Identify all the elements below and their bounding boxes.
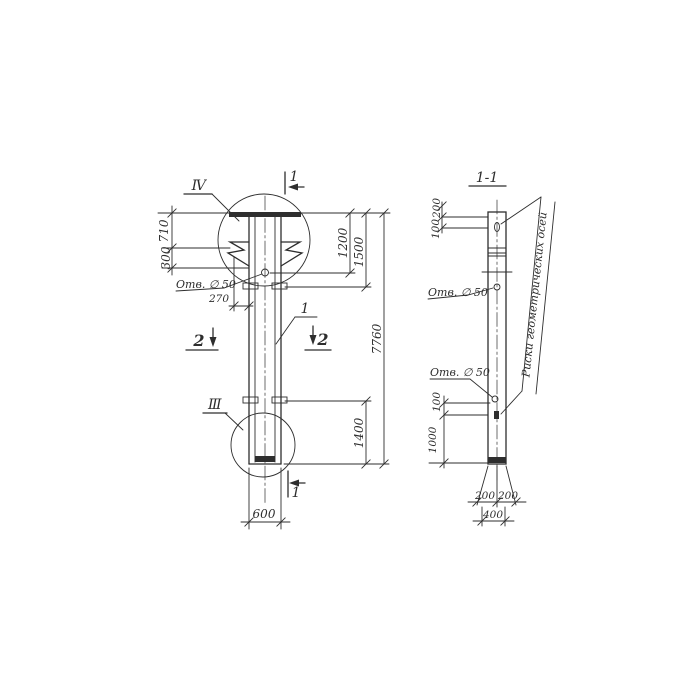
dim-1500: 1500 <box>352 236 366 267</box>
axis-mark-rect <box>494 411 499 419</box>
collar-chevron-left <box>228 242 249 266</box>
note-leader-bottom <box>501 391 522 414</box>
section-mark-1-top: 1 <box>290 169 299 185</box>
hole-diameter-label-lower: Отв. ∅ 50 <box>430 366 490 379</box>
dim-1000: 1000 <box>427 426 439 453</box>
detail-iv-leader <box>212 194 239 221</box>
part-callout-1: 1 <box>301 301 310 317</box>
rail-mark-lower-right <box>272 397 287 403</box>
dim-1200: 1200 <box>336 227 350 258</box>
dim-7760: 7760 <box>370 323 384 354</box>
dim-200-bottom-right: 200 <box>497 490 518 502</box>
section-mark-2-right: 2 <box>316 330 328 349</box>
section-mark-2-left: 2 <box>192 331 204 350</box>
section-mark-1-bottom: 1 <box>292 485 301 501</box>
technical-drawing: IV III 1 1 2 2 1 Отв. ∅ 50 710 300 270 1… <box>0 0 700 700</box>
dim-600: 600 <box>253 507 276 521</box>
detail-circle-iv <box>218 194 310 286</box>
callout-leader <box>276 317 295 344</box>
axis-note: Риски геометрических осей <box>519 211 549 378</box>
rail-mark-upper-right <box>272 283 287 289</box>
dim-270: 270 <box>208 293 229 305</box>
left-view-outline <box>218 194 310 503</box>
dim-400: 400 <box>482 509 503 521</box>
dim-300: 300 <box>159 246 173 269</box>
bottom-band-section <box>488 457 506 463</box>
section-title-1-1: 1-1 <box>476 170 499 186</box>
section-arrow-2-right <box>310 335 317 345</box>
detail-iii-leader <box>225 413 243 430</box>
dim-1400: 1400 <box>352 417 366 448</box>
dim-200-top: 200 <box>431 198 443 219</box>
dim-200-bottom-left: 200 <box>474 490 495 502</box>
dim-100-mid: 100 <box>431 392 443 412</box>
section-arrow-2-left <box>210 337 217 347</box>
cap-plate <box>229 212 301 217</box>
detail-label-iv: IV <box>191 178 208 194</box>
hole-diameter-label-left: Отв. ∅ 50 <box>176 278 236 291</box>
left-view: IV III 1 1 2 2 1 Отв. ∅ 50 710 300 270 1… <box>157 169 390 529</box>
hole-diameter-label-upper: Отв. ∅ 50 <box>428 286 488 299</box>
rail-mark-lower-left <box>243 397 258 403</box>
bottom-band <box>255 456 275 462</box>
detail-label-iii: III <box>207 397 222 413</box>
dim-100-top: 100 <box>430 219 442 239</box>
right-view-outline <box>482 200 512 480</box>
drawing-canvas: IV III 1 1 2 2 1 Отв. ∅ 50 710 300 270 1… <box>0 0 700 700</box>
collar-chevron-right <box>281 242 302 266</box>
dim-710: 710 <box>157 219 171 242</box>
detail-circle-iii <box>231 413 295 477</box>
right-view: 1-1 200 100 Отв. ∅ 50 Отв. ∅ 50 100 1000… <box>427 170 555 526</box>
